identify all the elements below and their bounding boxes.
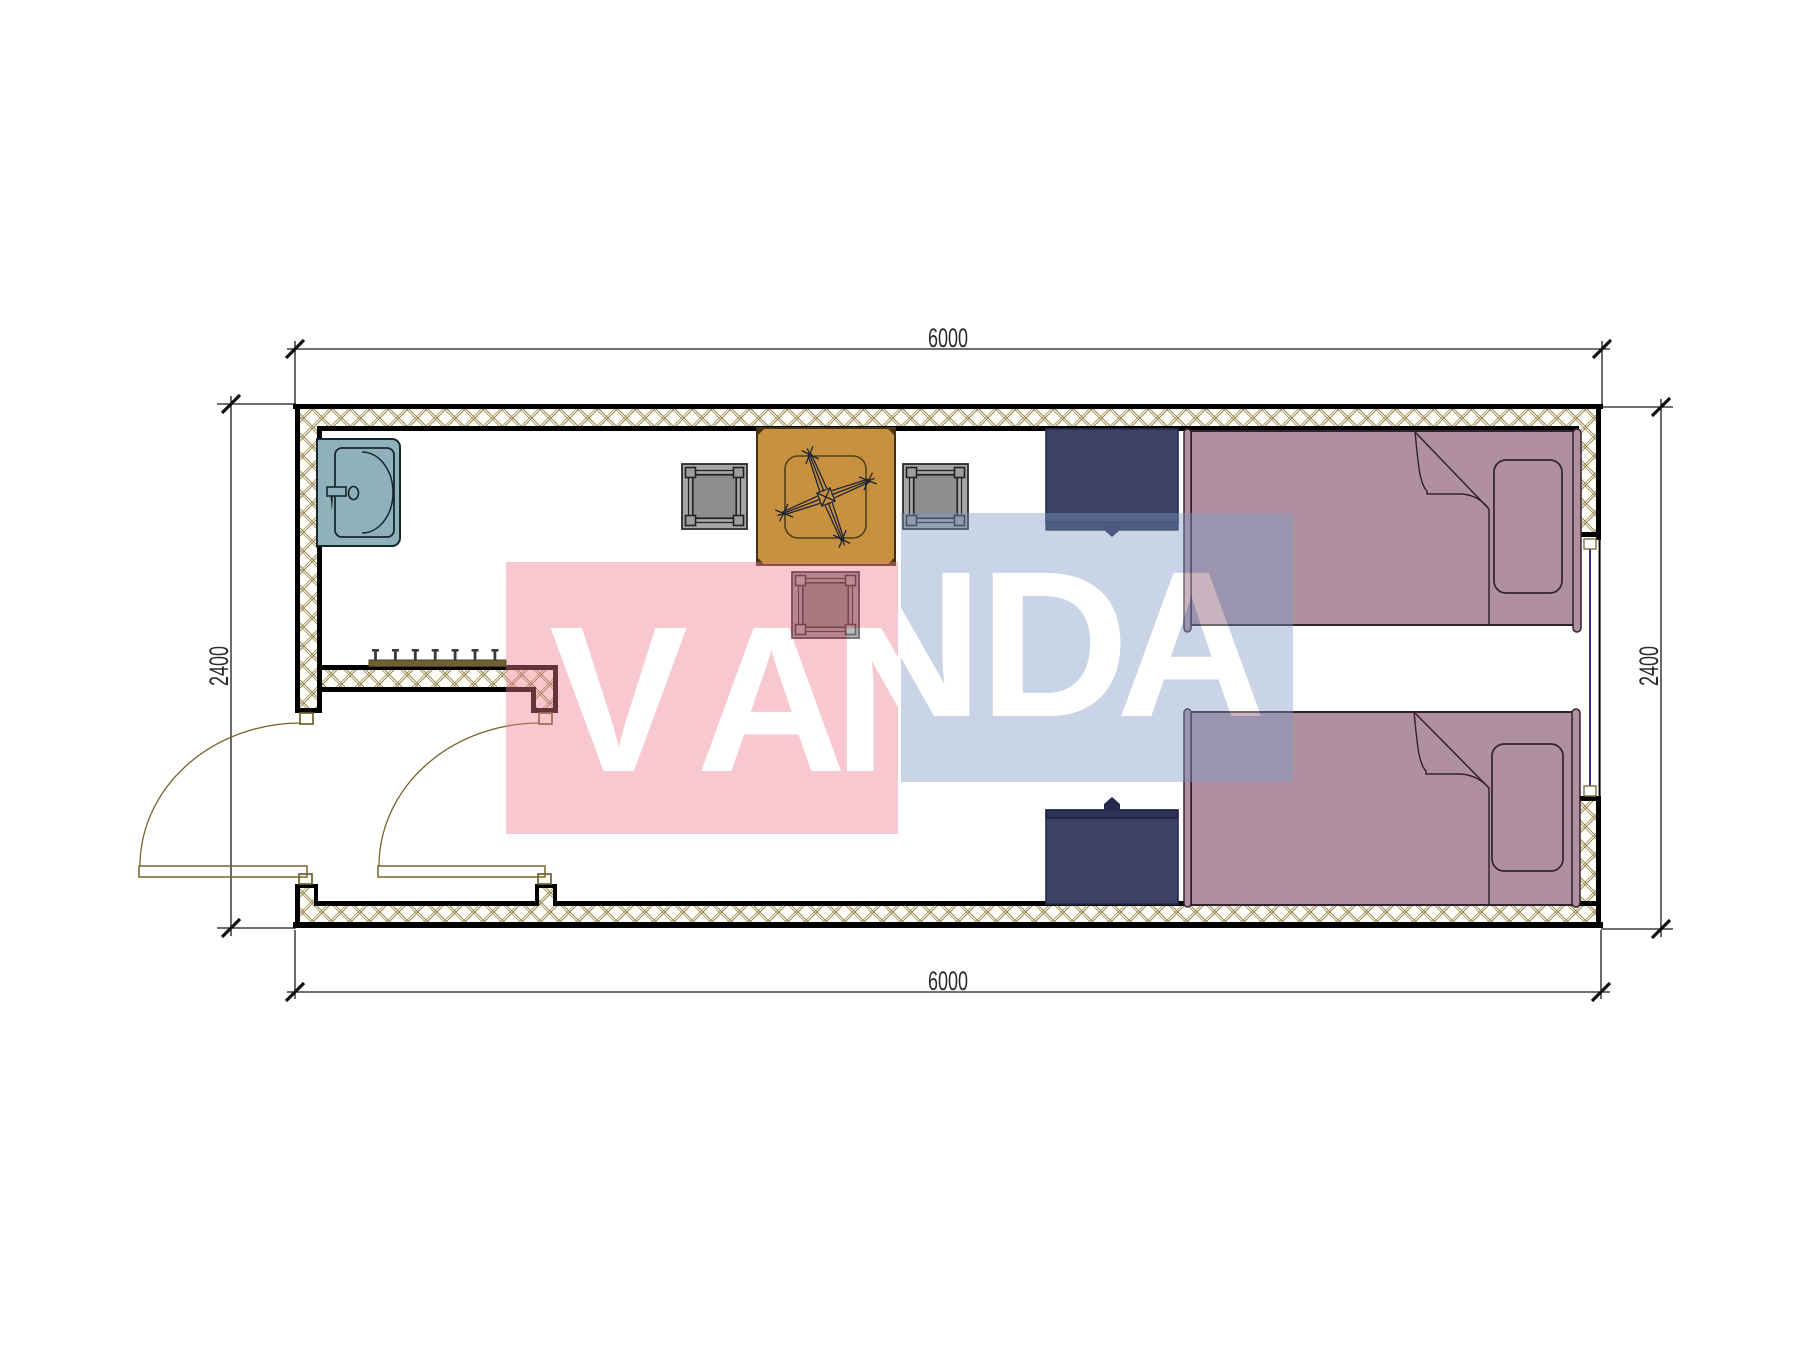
- svg-text:2400: 2400: [1634, 646, 1664, 686]
- svg-text:2400: 2400: [204, 646, 234, 686]
- svg-text:6000: 6000: [928, 323, 968, 353]
- svg-text:6000: 6000: [928, 966, 968, 996]
